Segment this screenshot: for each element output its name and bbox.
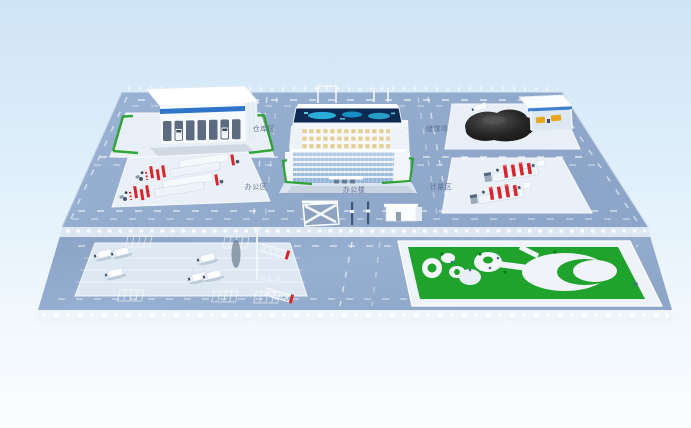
canopy-roof xyxy=(519,95,572,108)
office-entrance-canopy xyxy=(329,176,363,180)
warehouse-zone-label: 仓库区 xyxy=(253,124,276,133)
office-zone-label: 办公区 xyxy=(245,182,268,191)
left-equipment-pad xyxy=(112,151,270,207)
office-penthouse-windows xyxy=(302,127,390,149)
coal-pile-highlight xyxy=(482,116,506,124)
site-plan-stage: 仓库区 储煤场 办公区 办公楼 计量区 停车场 xyxy=(0,0,691,428)
weighing-zone-label: 计量区 xyxy=(430,182,453,191)
warehouse-bays xyxy=(163,119,241,141)
site-plan-render: 仓库区 储煤场 办公区 办公楼 计量区 停车场 xyxy=(0,0,691,428)
park-oval-plaza xyxy=(573,260,617,282)
warehouse-roof xyxy=(146,86,259,106)
warehouse-side-face xyxy=(245,101,258,141)
coal-yard-label: 储煤场 xyxy=(426,124,449,133)
office-building-label: 办公楼 xyxy=(343,185,366,194)
loader-2 xyxy=(551,114,562,121)
pole-shadow xyxy=(232,240,241,268)
park-garden xyxy=(398,241,662,306)
office-screen-sill xyxy=(292,123,403,127)
office-mid-ledge xyxy=(289,149,407,153)
loader-1 xyxy=(536,116,546,123)
guard-house xyxy=(384,204,422,221)
gate-top-beam xyxy=(302,201,338,204)
loader-detail xyxy=(547,119,550,123)
canopy-interior xyxy=(529,109,573,131)
coal-pile xyxy=(465,110,535,142)
guard-house-door xyxy=(396,212,401,221)
parking-lot-label: 停车场 xyxy=(259,274,282,283)
office-roof-cap xyxy=(296,104,399,108)
flood-light-head xyxy=(253,227,261,230)
